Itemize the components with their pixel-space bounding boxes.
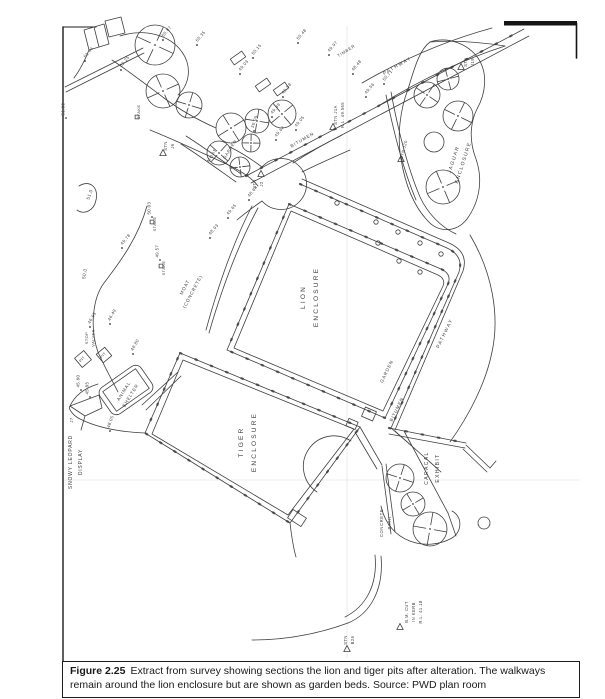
bitumen-corridor [355, 427, 382, 469]
svg-text:48.05: 48.05 [106, 415, 115, 429]
tree-symbol [401, 492, 425, 516]
svg-text:SNOWY LEOPARDDISPLAY: SNOWY LEOPARDDISPLAY [68, 435, 84, 489]
caracal-garden-curve [381, 506, 460, 544]
spot-height: 48.80 [128, 338, 142, 355]
svg-text:STN J20: STN J20 [399, 139, 409, 159]
svg-text:49.03: 49.03 [237, 59, 249, 72]
tiger-bottom-fence [290, 523, 296, 557]
spot-height: 49.57 [155, 245, 161, 261]
svg-text:49.65: 49.65 [225, 203, 237, 216]
svg-text:49.56: 49.56 [363, 82, 375, 95]
bulb-connector [237, 201, 262, 220]
svg-text:51.0: 51.0 [85, 189, 93, 201]
caracal-exhibit-label: CARACALEXHIBIT [424, 451, 441, 484]
svg-text:45.80: 45.80 [76, 375, 81, 388]
shrub-circle [478, 517, 490, 529]
page: 51.0251.4452.2550.8750.3550.1549.0350.48… [0, 0, 605, 699]
svg-text:50.48: 50.48 [295, 28, 307, 41]
garden-plant-dot [374, 220, 378, 224]
tree-symbol [443, 101, 473, 131]
spot-height: 49.58 [278, 82, 293, 99]
concrete-path-label: CONCRETEPATH [379, 509, 392, 537]
svg-text:ANIMALSHELTER: ANIMALSHELTER [115, 379, 140, 408]
kerb-line [252, 623, 348, 640]
svg-text:51.44: 51.44 [82, 46, 94, 59]
caracal-hook-fence [463, 445, 496, 472]
spot-heights-layer: 51.0251.4452.2550.8750.3550.1549.0350.48… [61, 25, 395, 433]
plan-labels-layer: LIONENCLOSURETIGERENCLOSUREJAGUARENCLOSU… [68, 43, 475, 644]
lion-enclosure-inner [234, 211, 444, 411]
tree-symbol [146, 74, 180, 108]
spot-height: 46.49 [105, 308, 119, 325]
tree-symbol [216, 113, 246, 143]
svg-text:STNB26: STNB26 [343, 635, 355, 645]
tree-symbol [413, 512, 447, 546]
svg-text:49.05: 49.05 [293, 115, 305, 128]
contour-50-line [93, 206, 147, 392]
scan-edge-mark [504, 21, 577, 26]
spot-height: 49.65 [223, 203, 238, 220]
svg-text:46.63: 46.63 [86, 311, 97, 325]
svg-text:48.48: 48.48 [350, 59, 362, 72]
shrub-circle [424, 132, 444, 152]
top-left-buildings [65, 17, 144, 92]
garden-pathway-strip [300, 179, 495, 472]
survey-station-marker [258, 170, 264, 176]
figure-caption-label: Figure 2.25 [70, 665, 125, 677]
svg-text:MOAT(CONCRETE): MOAT(CONCRETE) [174, 270, 204, 309]
pathway-top-label: PATHWAY [382, 55, 413, 76]
spot-height: 45.80 [76, 375, 82, 391]
garden-plant-dot [418, 241, 422, 245]
caracal-inner-fence [404, 431, 456, 536]
upper-pathway-edge [380, 46, 505, 105]
spot-height: 50.15 [248, 43, 263, 60]
svg-text:50.03: 50.03 [147, 202, 152, 215]
svg-text:STOPVALVES: STOPVALVES [84, 329, 96, 346]
tiger-enclosure-label: TIGERENCLOSURE [238, 412, 258, 472]
jaguar-enclosure-area [386, 40, 485, 234]
svg-text:TIMBER: TIMBER [336, 43, 356, 58]
svg-text:49.97: 49.97 [326, 40, 338, 53]
garden-plant-dot [397, 259, 401, 263]
jaguar-enclosure-outline [399, 40, 484, 230]
station-j1a-label: STN J1AR.L. 49.565 [333, 102, 345, 128]
stop-valves-label: STOPVALVES [84, 329, 96, 346]
j7-label: J7 [69, 417, 74, 422]
tree-symbol [386, 464, 414, 492]
contour-51-label: 51.0 [85, 189, 93, 201]
svg-text:48.80: 48.80 [129, 338, 140, 352]
station-j19-label: STNJ19 [463, 57, 475, 67]
spot-height: 49.03 [235, 59, 250, 76]
svg-text:51.02: 51.02 [61, 103, 66, 116]
svg-text:JAGUARENCLOSURE: JAGUARENCLOSURE [444, 138, 473, 185]
spot-height: 50.09 [249, 115, 261, 133]
tree-symbol [242, 134, 260, 152]
garden-right-label: GARDEN [379, 359, 394, 383]
contour-50-label: 50.0 [81, 268, 88, 279]
spot-height: 50.48 [293, 28, 308, 45]
spot-height: 49.64 [271, 125, 286, 142]
svg-text:STAKE: STAKE [152, 217, 157, 232]
garden-bed-curve [112, 60, 216, 128]
stake-label-2: STAKE [152, 217, 157, 232]
caracal-top-fence [389, 428, 466, 448]
svg-text:46.49: 46.49 [106, 308, 117, 322]
svg-text:CONCRETEPATH: CONCRETEPATH [379, 509, 392, 537]
svg-text:48.93: 48.93 [207, 223, 219, 236]
concrete-path-arc [348, 556, 381, 623]
svg-text:GARDEN: GARDEN [379, 359, 394, 383]
sign-post-rect [255, 78, 270, 92]
pathway-right-label: PATHWAY [435, 318, 455, 350]
garden-bed-curve [120, 33, 188, 95]
svg-text:50.15: 50.15 [250, 43, 262, 56]
figure-caption-text: Extract from survey showing sections the… [70, 665, 545, 691]
svg-text:STAKE: STAKE [161, 261, 166, 276]
svg-text:49.78: 49.78 [119, 233, 131, 246]
jaguar-west-path [391, 92, 456, 234]
spot-height: 52.25 [116, 55, 131, 72]
display-flag-tail [81, 416, 85, 430]
station-j20-label: STN J20 [399, 139, 409, 159]
spot-height: 50.35 [192, 30, 207, 47]
svg-text:PIT: PIT [99, 351, 107, 359]
station-j2-label: STNJ2 [252, 179, 264, 189]
display-boundary-curve [69, 406, 145, 433]
concrete-path-bottom [252, 555, 381, 640]
spot-height: 49.78 [117, 233, 132, 250]
svg-text:CARACALEXHIBIT: CARACALEXHIBIT [424, 451, 441, 484]
svg-text:PATHWAY: PATHWAY [382, 55, 413, 76]
spot-height: 48.48 [348, 59, 363, 76]
upper-pathway-edge [362, 28, 492, 83]
station-j6-label: STNJ6 [163, 141, 175, 151]
animal-shelter-label: ANIMALSHELTER [115, 379, 140, 408]
pathway-outer-edge [450, 235, 495, 442]
station-b26-label: STNB26 [343, 635, 355, 645]
moat-concrete-label: MOAT(CONCRETE) [174, 270, 204, 309]
survey-plan: 51.0251.4452.2550.8750.3550.1549.0350.48… [0, 0, 605, 699]
spot-height: 49.05 [291, 115, 306, 132]
timber-label: TIMBER [336, 43, 356, 58]
svg-text:STN J1AR.L. 49.565: STN J1AR.L. 49.565 [333, 102, 345, 128]
strip-continuation [391, 428, 441, 472]
spot-height: 51.02 [61, 103, 67, 119]
tree-symbol [437, 68, 459, 90]
svg-text:LIONENCLOSURE: LIONENCLOSURE [300, 267, 320, 327]
svg-text:52.25: 52.25 [118, 55, 130, 68]
pit-label-2: PIT [99, 351, 107, 359]
survey-station-marker [397, 623, 403, 629]
bitumen-right-label: BITUMEN [389, 396, 405, 422]
svg-text:STAKE: STAKE [136, 105, 141, 120]
lion-enclosure [227, 204, 449, 430]
spot-height: 51.44 [80, 46, 95, 63]
tree-symbol [426, 170, 460, 204]
fence-double-line [65, 48, 144, 92]
figure-caption: Figure 2.25Extract from survey showing s… [62, 661, 580, 698]
spot-height: 49.56 [361, 82, 376, 99]
svg-text:TIGERENCLOSURE: TIGERENCLOSURE [238, 412, 258, 472]
svg-text:BITUMEN: BITUMEN [389, 396, 405, 422]
spot-height: 50.03 [147, 202, 153, 218]
svg-text:B.M. CUTIN KERBR.L. 41.18: B.M. CUTIN KERBR.L. 41.18 [404, 600, 423, 624]
stake-label-3: STAKE [161, 261, 166, 276]
garden-plant-dot [418, 270, 422, 274]
spot-height: 49.49 [267, 102, 282, 119]
svg-text:STNJ6: STNJ6 [163, 141, 175, 151]
svg-text:50.35: 50.35 [194, 30, 206, 43]
stake-label-1: STAKE [136, 105, 141, 120]
garden-plant-dot [335, 201, 339, 205]
svg-text:STNJ2: STNJ2 [252, 179, 264, 189]
building-divider [94, 27, 99, 47]
pit-label-1: PIT [78, 355, 86, 363]
garden-plant-dot [439, 252, 443, 256]
garden-plant-dot [396, 230, 400, 234]
spot-height: 46.63 [85, 311, 99, 328]
caracal-exhibit-area [381, 428, 496, 544]
svg-text:J7: J7 [69, 417, 74, 422]
svg-text:STNJ19: STNJ19 [463, 57, 475, 67]
spot-height: 45.85 [85, 382, 91, 398]
lion-enclosure-label: LIONENCLOSURE [300, 267, 320, 327]
svg-text:PIT: PIT [78, 355, 86, 363]
snowy-leopard-display-label: SNOWY LEOPARDDISPLAY [68, 435, 84, 489]
jaguar-enclosure-label: JAGUARENCLOSURE [444, 138, 473, 185]
svg-text:49.57: 49.57 [155, 245, 160, 258]
path-bulb-junction [230, 135, 350, 220]
svg-text:PATHWAY: PATHWAY [435, 318, 455, 350]
concrete-path-arc [345, 555, 375, 617]
svg-text:45.85: 45.85 [85, 382, 90, 395]
svg-text:49.49: 49.49 [269, 102, 281, 115]
post-markers-layer [230, 51, 288, 96]
spot-height: 48.93 [205, 223, 220, 240]
svg-text:50.0: 50.0 [81, 268, 88, 279]
benchmark-label: B.M. CUTIN KERBR.L. 41.18 [404, 600, 423, 624]
building-outline [105, 17, 125, 37]
